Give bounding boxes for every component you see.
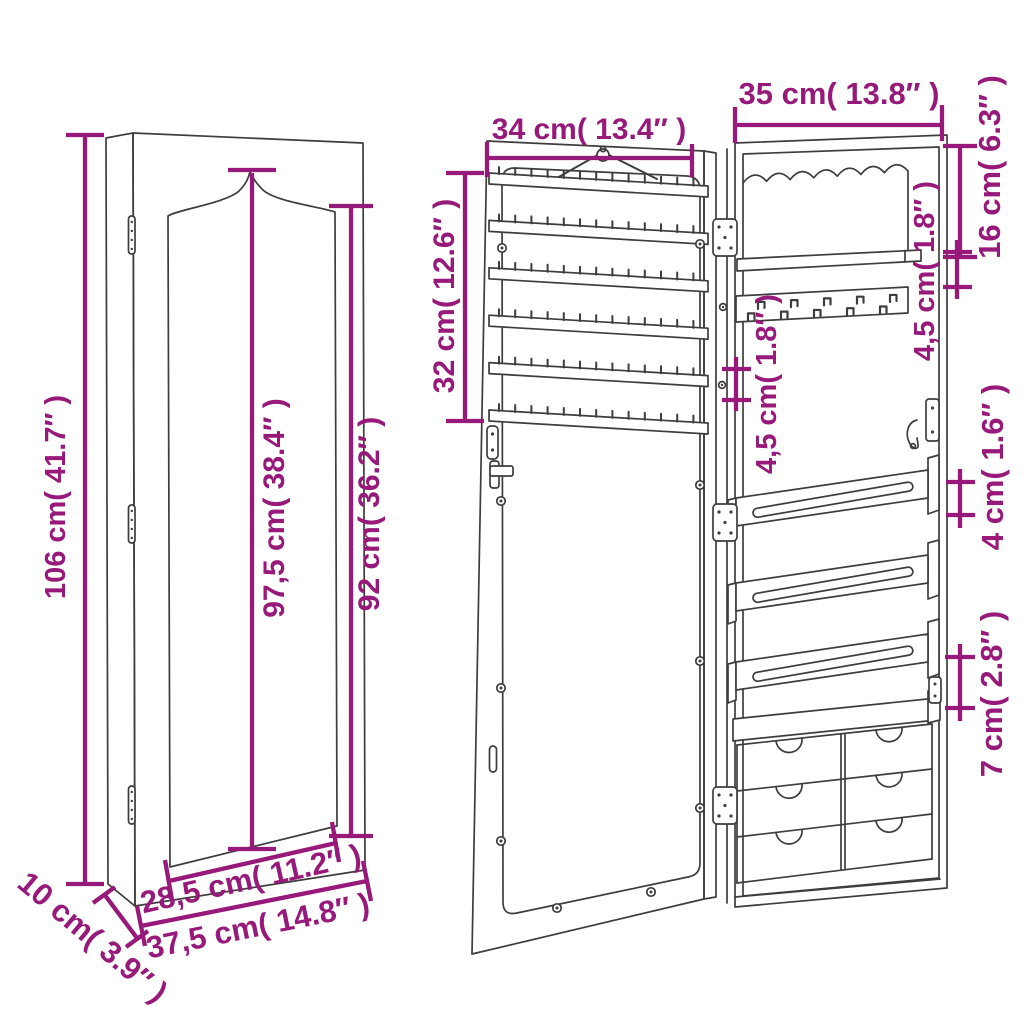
label-mirror-height: 97,5 cm( 38.4″ ) bbox=[258, 398, 291, 618]
drawer-section bbox=[737, 724, 932, 883]
earring-strip bbox=[489, 410, 708, 434]
hinge-dot bbox=[131, 818, 133, 820]
screw-dot bbox=[500, 500, 503, 503]
hinge-dot bbox=[717, 225, 720, 228]
rail-right-support bbox=[928, 540, 939, 599]
screw-dot bbox=[556, 907, 559, 910]
hinge-dot bbox=[723, 521, 726, 524]
lock-screw bbox=[931, 406, 934, 409]
hinge-dot bbox=[729, 531, 732, 534]
hinge-dot bbox=[131, 239, 133, 241]
door-outline bbox=[472, 141, 704, 954]
screw-dot bbox=[500, 687, 503, 690]
hinge-dot bbox=[131, 800, 133, 802]
closed-cabinet-view bbox=[106, 133, 365, 906]
screw-dot bbox=[722, 306, 724, 308]
label-strip-spacing: 4,5 cm( 1.8″ ) bbox=[751, 294, 783, 474]
screw-dot bbox=[699, 660, 702, 663]
hinge-dot bbox=[729, 225, 732, 228]
compartment-shelf bbox=[737, 250, 921, 271]
hinge-dot bbox=[131, 528, 133, 530]
earring-strip-rack bbox=[489, 167, 708, 434]
mount-slot bbox=[490, 746, 497, 772]
hinge-dot bbox=[717, 793, 720, 796]
door-latch bbox=[487, 426, 513, 488]
bracelet-rails bbox=[728, 455, 939, 703]
cabinet-inner-bottom-edge bbox=[735, 879, 940, 897]
hinge-dot bbox=[729, 793, 732, 796]
hinge-dot bbox=[723, 804, 726, 807]
tray-latch-screw bbox=[934, 683, 937, 686]
cabinet-lock bbox=[907, 399, 939, 448]
dimension-diagram: 106 cm( 41.7″ ) 97,5 cm( 38.4″ ) 92 cm( … bbox=[0, 0, 1024, 1024]
label-closed-height: 106 cm( 41.7″ ) bbox=[40, 395, 72, 599]
label-open-cabinet-width: 35 cm( 13.8″ ) bbox=[739, 76, 940, 111]
label-shelf-gap: 4,5 cm( 1.8″ ) bbox=[909, 181, 941, 361]
earring-strip bbox=[489, 220, 708, 244]
hinge-dot bbox=[131, 221, 133, 223]
jewelry-cabinet-diagram-svg: 106 cm( 41.7″ ) 97,5 cm( 38.4″ ) 92 cm( … bbox=[0, 0, 1024, 1024]
earring-strip bbox=[489, 173, 708, 197]
hinge-dot bbox=[131, 537, 133, 539]
latch-screw bbox=[491, 448, 494, 451]
rail-right-support bbox=[928, 619, 939, 678]
hinge-dot bbox=[717, 814, 720, 817]
rail-right-support bbox=[928, 455, 939, 514]
tray-latch-screw bbox=[934, 695, 937, 698]
hinge-dot bbox=[717, 246, 720, 249]
rail-left-support bbox=[728, 662, 736, 703]
screw-dot bbox=[501, 247, 504, 250]
earring-strip bbox=[489, 363, 708, 387]
hinge-dot bbox=[729, 246, 732, 249]
latch-plate bbox=[487, 426, 498, 459]
latch-handle bbox=[490, 466, 513, 476]
screw-dot bbox=[500, 840, 503, 843]
scalloped-compartment-edge bbox=[743, 165, 908, 183]
screw-dot bbox=[699, 243, 702, 246]
screw-dot bbox=[699, 484, 702, 487]
earring-strip bbox=[489, 268, 708, 292]
label-door-rack-height: 32 cm( 12.6″ ) bbox=[428, 199, 461, 393]
latch-screw bbox=[491, 432, 494, 435]
screw-dot bbox=[699, 807, 702, 810]
dimension-labels: 106 cm( 41.7″ ) 97,5 cm( 38.4″ ) 92 cm( … bbox=[11, 75, 1010, 1009]
hinge-dot bbox=[131, 248, 133, 250]
hinge-dot bbox=[723, 236, 726, 239]
screw-dot bbox=[650, 891, 653, 894]
dim-tick bbox=[93, 887, 115, 903]
label-front-height: 92 cm( 36.2″ ) bbox=[353, 417, 386, 611]
lock-striker-plate bbox=[926, 399, 939, 441]
tray-latch-plate bbox=[929, 677, 941, 703]
label-rail-height: 4 cm( 1.6″ ) bbox=[975, 384, 1010, 550]
hinge-dot bbox=[717, 531, 720, 534]
open-door-view bbox=[472, 141, 716, 954]
hinge-dot bbox=[131, 519, 133, 521]
screw-dot bbox=[721, 384, 723, 386]
label-drawer-gap: 7 cm( 2.8″ ) bbox=[974, 611, 1009, 777]
hinge-dot bbox=[131, 510, 133, 512]
hinge-dot bbox=[131, 809, 133, 811]
cabinet-screws bbox=[719, 304, 727, 389]
label-door-width: 34 cm( 13.4″ ) bbox=[492, 113, 686, 146]
earring-strip bbox=[489, 315, 708, 339]
hinge-dot bbox=[131, 791, 133, 793]
door-screws bbox=[490, 240, 705, 912]
drawer-row-line bbox=[737, 859, 932, 883]
rail-left-support bbox=[728, 583, 736, 624]
label-top-compartment-height: 16 cm( 6.3″ ) bbox=[972, 75, 1007, 259]
hinge-dot bbox=[729, 814, 732, 817]
hinge-dot bbox=[131, 230, 133, 232]
hinge-dot bbox=[729, 510, 732, 513]
hinge-dot bbox=[717, 510, 720, 513]
lock-screw bbox=[931, 430, 934, 433]
